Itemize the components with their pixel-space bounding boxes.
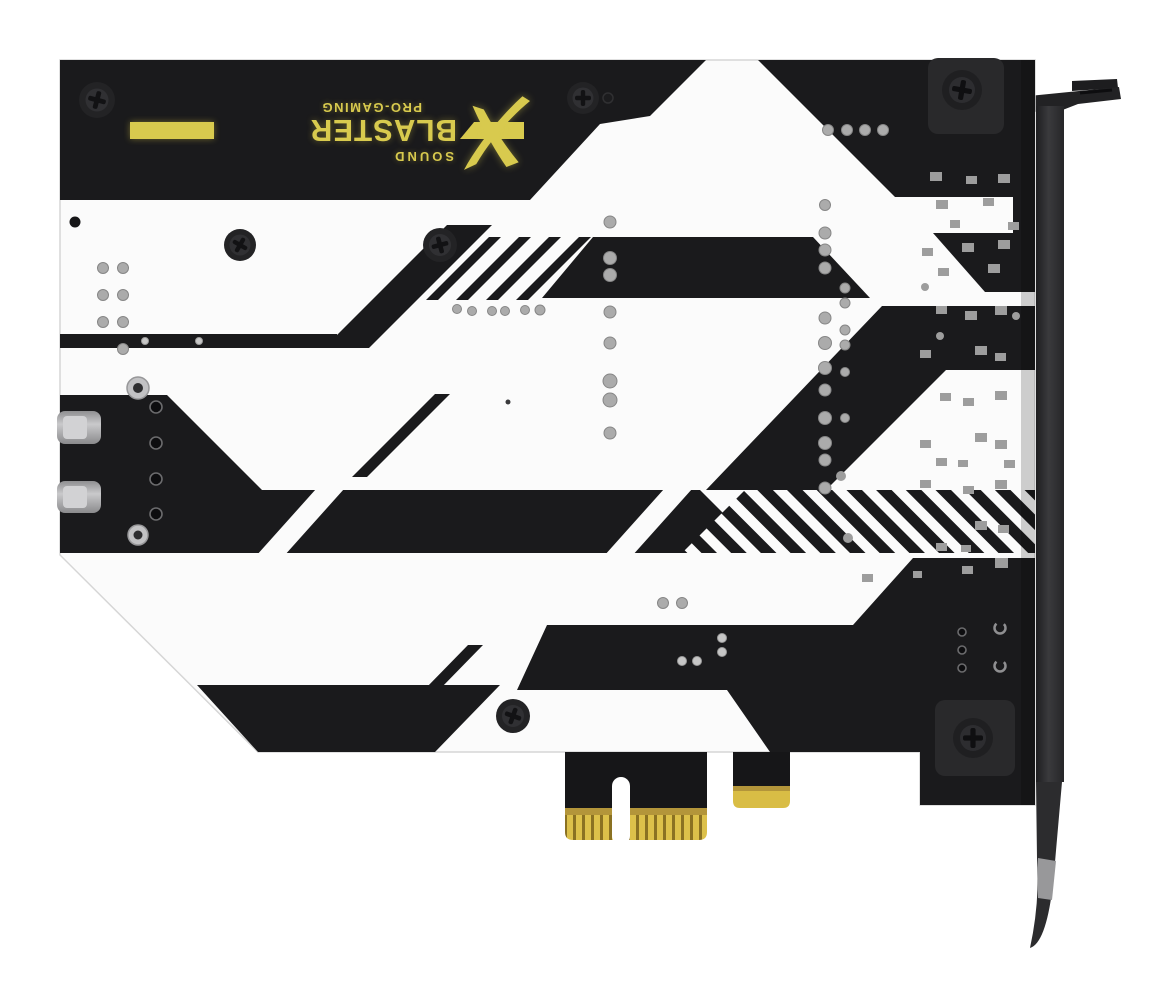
connector-tab: [733, 752, 790, 788]
pci-bracket: [1029, 79, 1121, 948]
phillips-screw-icon: [953, 718, 993, 758]
logo-tagline-text: PRO-GAMING: [321, 100, 422, 115]
bracket-tongue-highlight: [1038, 858, 1056, 900]
logo-sound-text: SOUND: [392, 149, 454, 164]
card-edge-shade: [1021, 60, 1035, 805]
logo-blaster-text: BLASTER: [310, 112, 457, 148]
phillips-screw-icon: [224, 229, 256, 261]
pcie-edge-connector: [565, 752, 790, 845]
brand-logo: SOUND BLASTER PRO-GAMING: [120, 86, 530, 172]
product-photo-sound-card: SOUND BLASTER PRO-GAMING: [0, 0, 1160, 1000]
phillips-screw-icon: [423, 228, 457, 262]
phillips-screw-icon: [496, 699, 530, 733]
phillips-screw-icon: [567, 82, 599, 114]
logo-bar-icon: [130, 122, 214, 139]
blasterx-x-icon: [464, 96, 530, 172]
connector-body: [565, 752, 707, 810]
bracket-strip: [1036, 106, 1064, 782]
phillips-screw-icon: [942, 70, 982, 110]
phillips-screw-icon: [79, 82, 115, 118]
connector-slot: [612, 777, 630, 845]
